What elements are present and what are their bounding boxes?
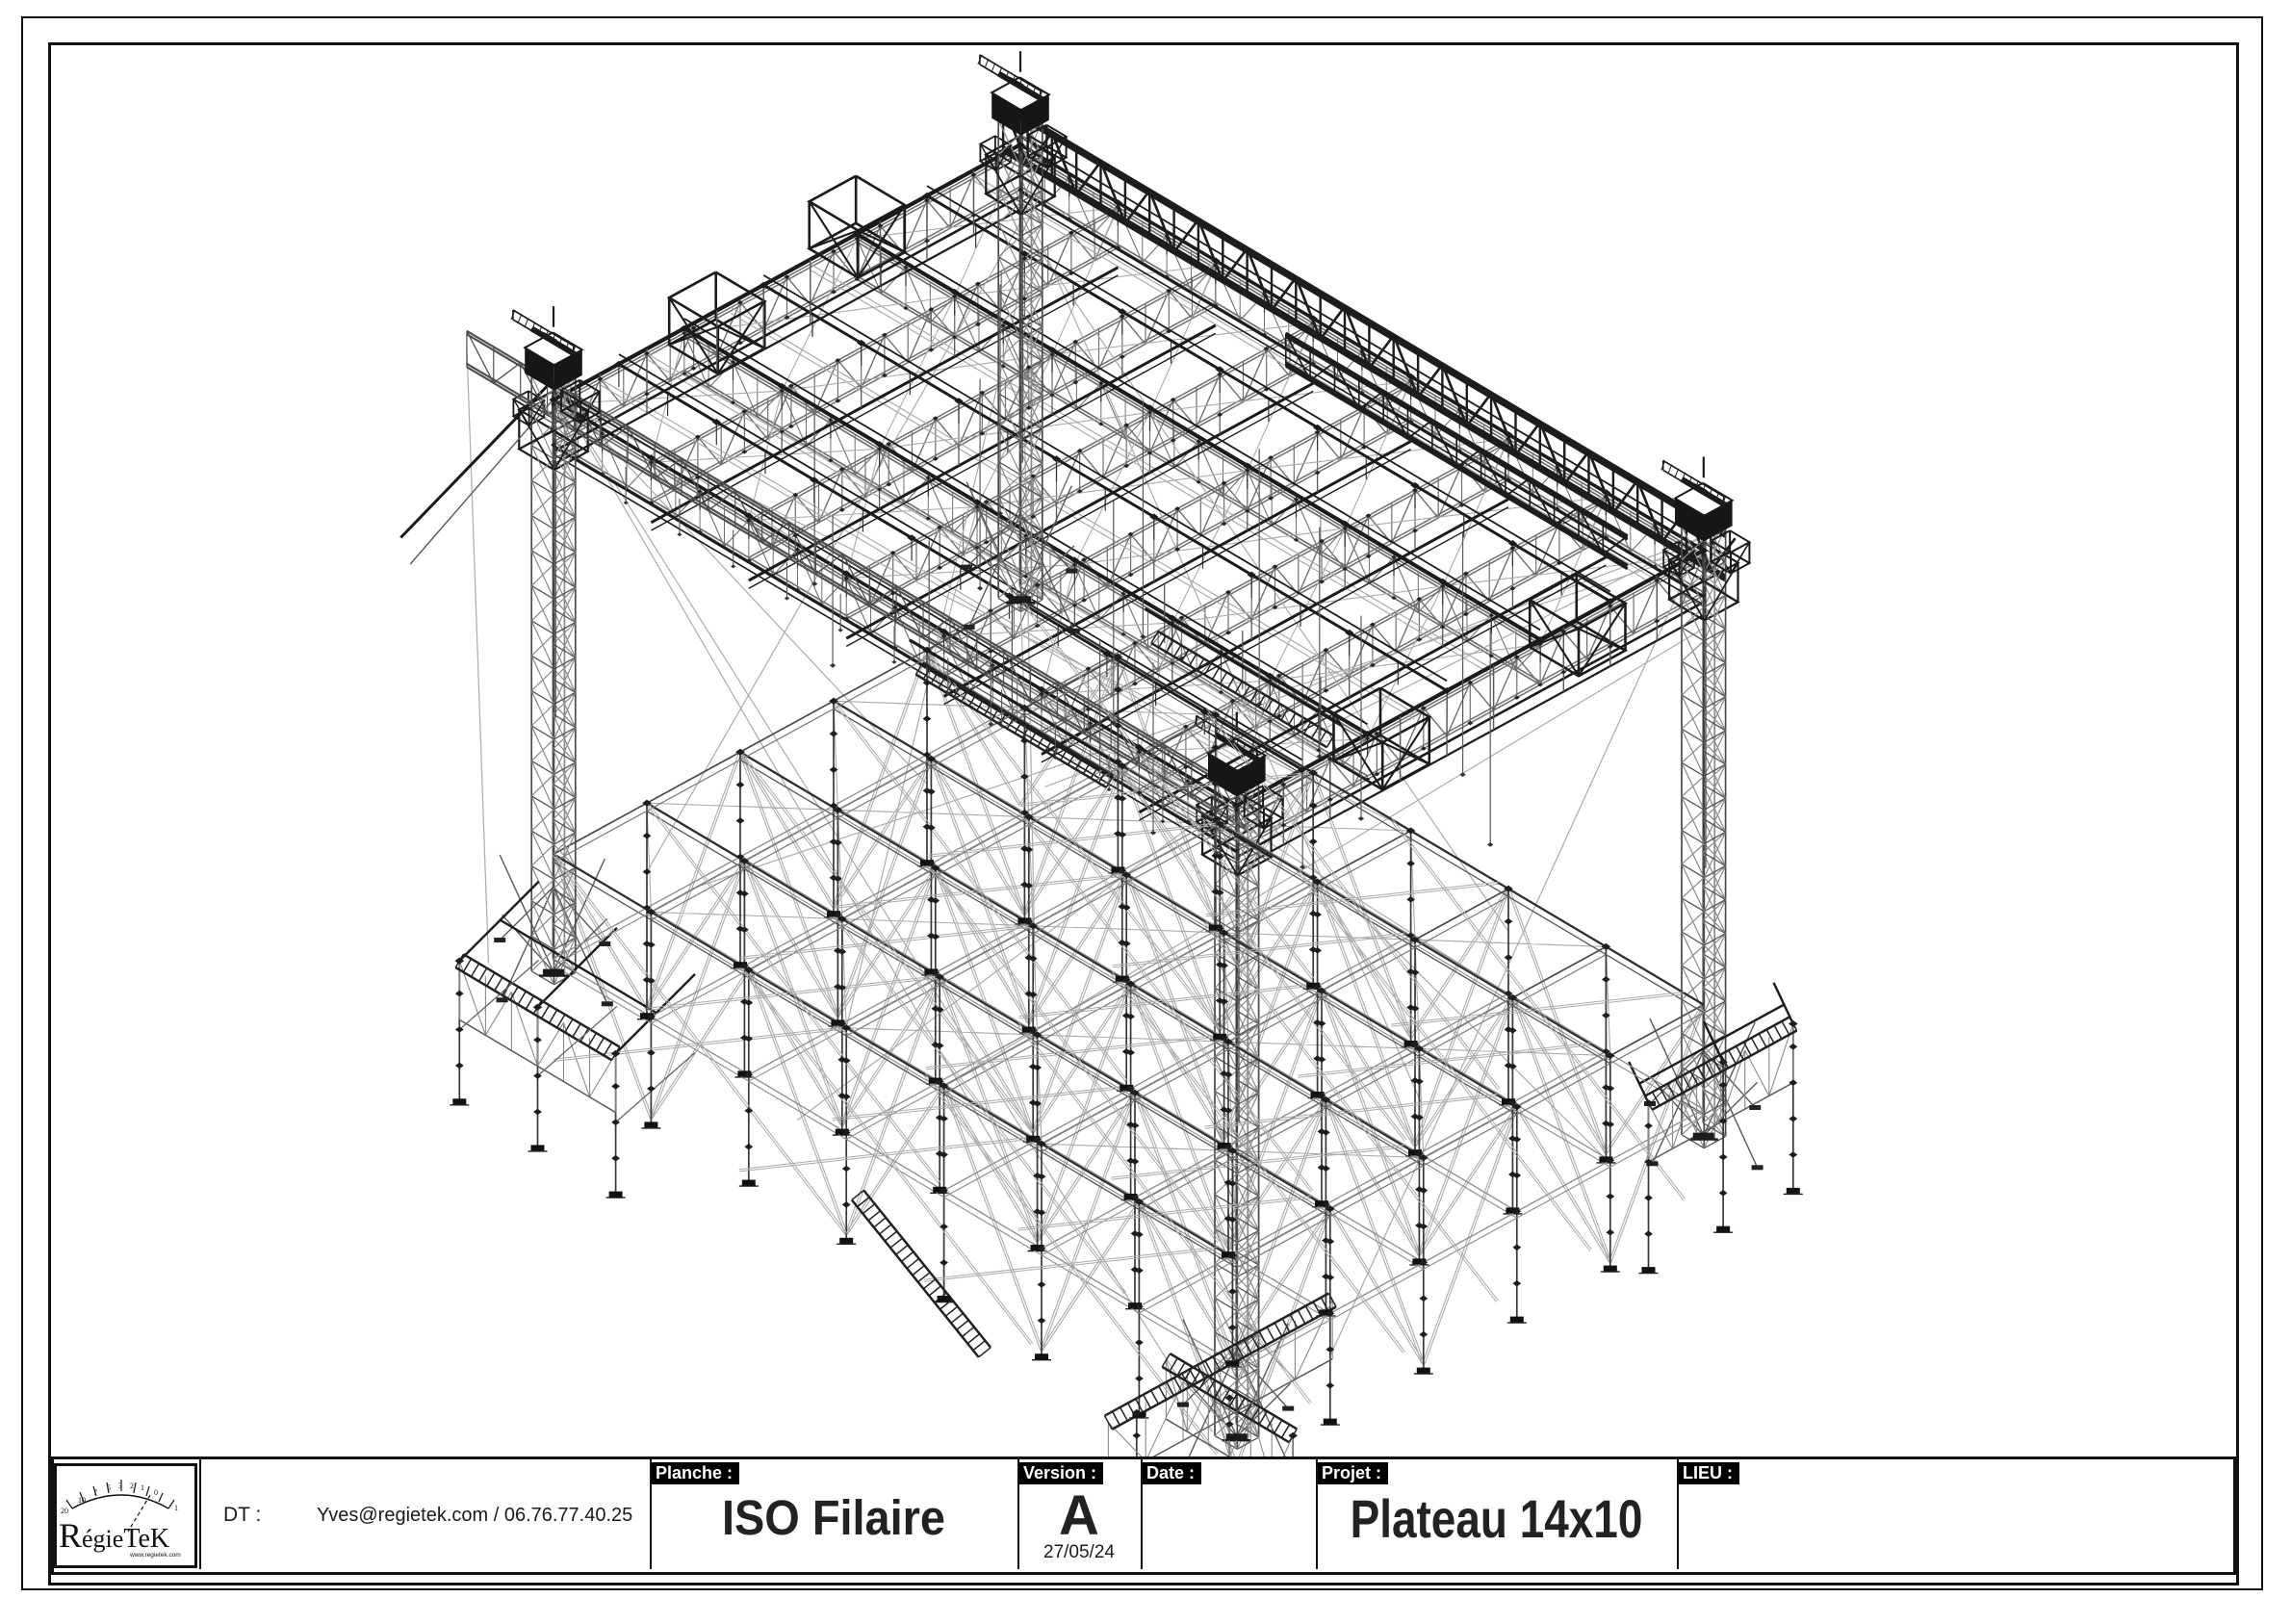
svg-text:www.regietek.com: www.regietek.com: [129, 1552, 181, 1559]
svg-text:10: 10: [78, 1496, 86, 1505]
svg-text:2: 2: [130, 1482, 134, 1490]
svg-text:7: 7: [93, 1488, 97, 1497]
svg-text:20: 20: [61, 1507, 68, 1515]
svg-text:3: 3: [118, 1482, 122, 1490]
svg-text:1: 1: [141, 1483, 144, 1492]
svg-text:0: 0: [154, 1488, 158, 1497]
svg-text:5: 5: [107, 1483, 111, 1492]
svg-text:1: 1: [174, 1504, 178, 1512]
svg-text:RégieTeK: RégieTeK: [59, 1516, 169, 1555]
